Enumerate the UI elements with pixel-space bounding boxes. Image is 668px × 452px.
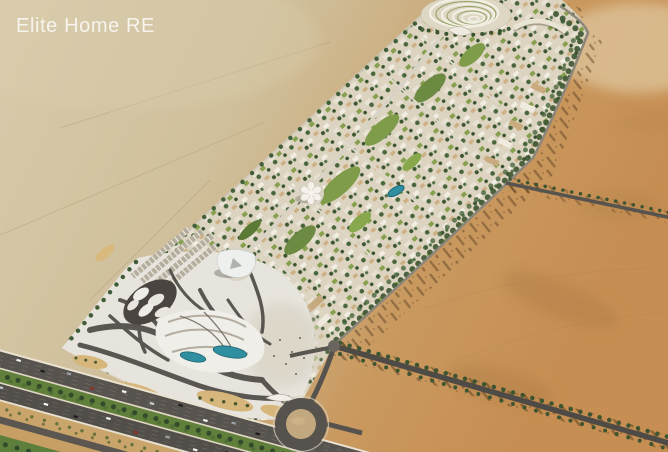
aerial-photo: Elite Home RE [0,0,668,452]
junction [328,340,340,352]
roundabout [274,397,329,452]
aerial-scene [0,0,668,452]
